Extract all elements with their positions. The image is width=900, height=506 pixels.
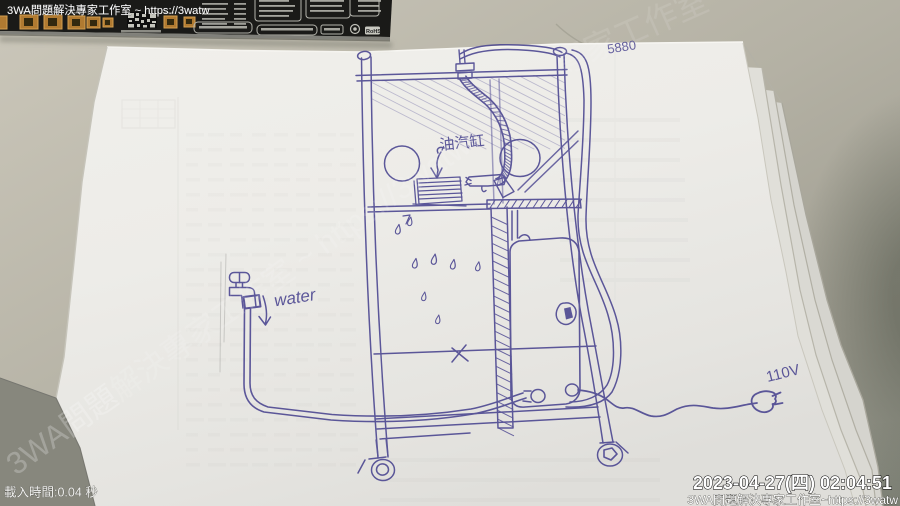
svg-text:3WA問題解決專家工作室 ~ https://3watw: 3WA問題解決專家工作室 ~ https://3watw [7,3,210,17]
svg-text:載入時間:0.04 秒: 載入時間:0.04 秒 [4,486,98,500]
svg-text:2023-04-27(四) 02:04:51: 2023-04-27(四) 02:04:51 [693,473,892,493]
svg-text:RoHS: RoHS [366,29,381,35]
svg-text:3WA問題解決專家工作室~https://3watw: 3WA問題解決專家工作室~https://3watw [687,492,898,506]
